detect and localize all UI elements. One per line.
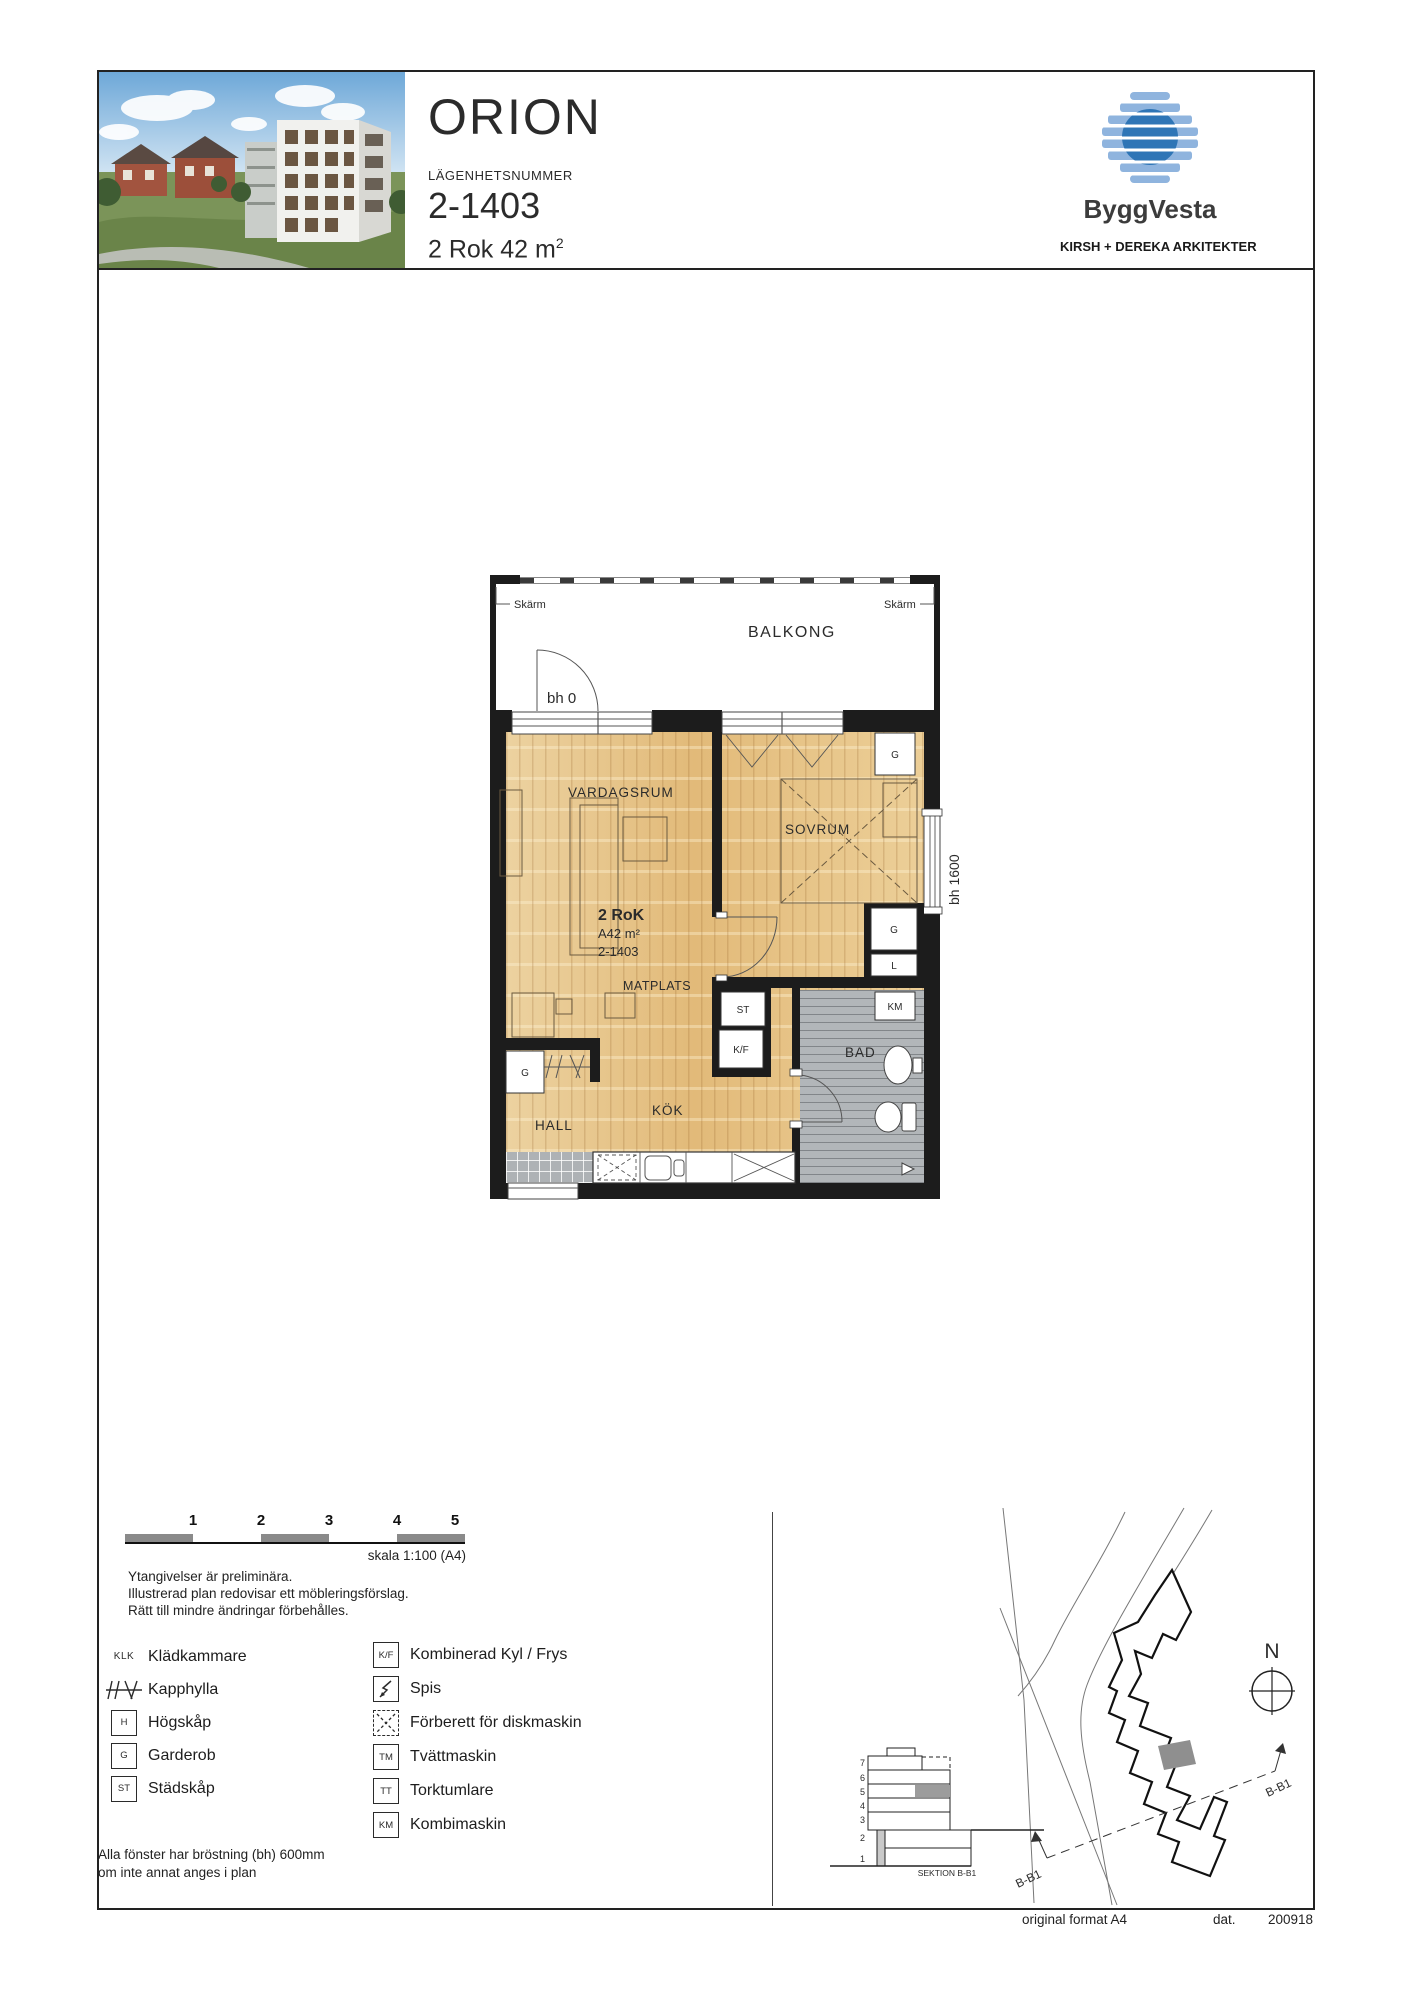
floorplan-sheet: ORION LÄGENHETSNUMMER 2-1403 2 Rok 42 m2: [0, 0, 1414, 2000]
north-compass-icon: [1249, 1667, 1295, 1715]
cleaning-closet-label: ST: [737, 1005, 750, 1016]
legend-item-diskmaskin: Förberett för diskmaskin: [362, 1706, 582, 1740]
toilet-icon: [875, 1102, 916, 1132]
legend-item-kladkammare: KLK Klädkammare: [100, 1640, 247, 1673]
brand-name: ByggVesta: [1060, 194, 1240, 225]
svg-text:7: 7: [860, 1758, 865, 1768]
svg-text:1: 1: [860, 1854, 865, 1864]
disclaimer-notes: Ytangivelser är preliminära. Illustrerad…: [128, 1568, 409, 1619]
kapphylla-icon: [544, 1055, 590, 1078]
kapphylla-icon: [104, 1678, 144, 1702]
unit-type-label: 2 RoK: [598, 907, 645, 924]
window-note-line: Alla fönster har bröstning (bh) 600mm: [98, 1846, 325, 1864]
linen-closet-label: L: [891, 961, 897, 972]
legend-label: Garderob: [148, 1747, 216, 1765]
tvattmaskin-symbol: TM: [373, 1744, 399, 1770]
scale-tick: 4: [387, 1512, 407, 1529]
bedroom-label: SOVRUM: [785, 822, 850, 837]
window-note: Alla fönster har bröstning (bh) 600mm om…: [98, 1846, 325, 1882]
entry-door: [508, 1183, 578, 1205]
legend-item-kylfrys: K/F Kombinerad Kyl / Frys: [362, 1638, 582, 1672]
legend-item-torktumlare: TT Torktumlare: [362, 1774, 582, 1808]
screen-leader-lines: [496, 587, 934, 604]
bath-label: BAD: [845, 1045, 876, 1060]
legend-label: Städskåp: [148, 1780, 215, 1798]
wardrobe-label: G: [891, 750, 899, 761]
kitchen-counter: [593, 1152, 795, 1183]
section-title: SEKTION B-B1: [918, 1868, 977, 1878]
architect-name: KIRSH + DEREKA ARKITEKTER: [1060, 239, 1240, 254]
legend-label: Torktumlare: [410, 1782, 494, 1800]
dining-label: MATPLATS: [623, 979, 691, 993]
bedroom-side-window: [922, 809, 942, 914]
legend-label: Spis: [410, 1680, 441, 1698]
balcony-label: BALKONG: [748, 624, 836, 641]
section-line-label: B-B1: [1013, 1867, 1043, 1891]
svg-text:6: 6: [860, 1773, 865, 1783]
legend-item-kapphylla: Kapphylla: [100, 1673, 247, 1706]
legend-item-hogskap: H Högskåp: [100, 1706, 247, 1739]
balcony-sill-label: bh 0: [547, 690, 576, 707]
project-title: ORION: [428, 88, 602, 146]
bathroom-door: [790, 1069, 842, 1128]
stadskap-symbol: ST: [111, 1776, 137, 1802]
footer-date: 200918: [1268, 1912, 1313, 1927]
svg-text:5: 5: [860, 1787, 865, 1797]
svg-text:2: 2: [860, 1833, 865, 1843]
legend-item-spis: Spis: [362, 1672, 582, 1706]
footer-date-label: dat.: [1213, 1912, 1236, 1927]
legend-label: Kombinerad Kyl / Frys: [410, 1646, 567, 1664]
legend-item-stadskap: ST Städskåp: [100, 1772, 247, 1805]
section-unit-marker: [915, 1785, 950, 1797]
legend-item-tvattmaskin: TM Tvättmaskin: [362, 1740, 582, 1774]
legend-label: Kombimaskin: [410, 1816, 506, 1834]
sink-icon: [645, 1156, 684, 1180]
wardrobe-label: G: [521, 1068, 529, 1079]
scale-tick: 3: [319, 1512, 339, 1529]
apartment-size: 2 Rok 42 m2: [428, 235, 602, 264]
legend-right-column: K/F Kombinerad Kyl / Frys Spis Förberett…: [362, 1638, 582, 1842]
wardrobe-label: G: [890, 925, 898, 936]
apartment-number: 2-1403: [428, 185, 602, 227]
scale-label: skala 1:100 (A4): [325, 1548, 466, 1563]
floor-drain-icon: [902, 1163, 914, 1175]
scale-bar: 1 2 3 4 5: [125, 1512, 466, 1546]
living-room-label: VARDAGSRUM: [568, 785, 674, 800]
legend-label: Klädkammare: [148, 1648, 247, 1666]
kitchen-label: KÖK: [652, 1103, 684, 1118]
kombimaskin-symbol: KM: [373, 1812, 399, 1838]
bedroom-door: [716, 912, 777, 981]
floor-numbers: 7 6 5 4 3 2 1: [860, 1758, 865, 1864]
scale-bar-segments: [125, 1534, 465, 1544]
legend-item-kombimaskin: KM Kombimaskin: [362, 1808, 582, 1842]
header-separator: [97, 268, 1313, 270]
diskmaskin-icon: [373, 1710, 399, 1736]
unit-area-label: A42 m²: [598, 926, 641, 941]
bedroom-window: [722, 712, 843, 767]
casement-marks: [726, 735, 838, 767]
living-room-window: [512, 712, 652, 734]
scale-tick: 1: [183, 1512, 203, 1529]
garderob-symbol: G: [111, 1743, 137, 1769]
window-sill-label: bh 1600: [946, 854, 962, 905]
building-footprint: [1109, 1570, 1227, 1876]
note-line: Rätt till mindre ändringar förbehålles.: [128, 1602, 409, 1619]
hall-label: HALL: [535, 1118, 573, 1133]
torktumlare-symbol: TT: [373, 1778, 399, 1804]
section-line-label: B-B1: [1263, 1776, 1293, 1800]
scale-tick: 2: [251, 1512, 271, 1529]
washbasin-icon: [884, 1046, 922, 1084]
building-photo: [99, 72, 405, 268]
legend-item-garderob: G Garderob: [100, 1739, 247, 1772]
unit-number-label: 2-1403: [598, 944, 638, 959]
kylfrys-symbol: K/F: [373, 1642, 399, 1668]
legend-label: Högskåp: [148, 1714, 211, 1732]
legend-left-column: KLK Klädkammare Kapphylla H Högskåp G Ga…: [100, 1640, 247, 1805]
size-superscript: 2: [556, 235, 564, 251]
note-line: Ytangivelser är preliminära.: [128, 1568, 409, 1585]
svg-text:4: 4: [860, 1801, 865, 1811]
spis-icon: [373, 1676, 399, 1702]
apartment-number-label: LÄGENHETSNUMMER: [428, 168, 602, 183]
scale-tick: 5: [445, 1512, 465, 1529]
fridge-freezer-label: K/F: [733, 1045, 749, 1056]
screen-label-left: Skärm: [514, 599, 546, 611]
klk-symbol: KLK: [114, 1651, 134, 1662]
svg-text:3: 3: [860, 1815, 865, 1825]
note-line: Illustrerad plan redovisar ett möblering…: [128, 1585, 409, 1602]
legend-label: Tvättmaskin: [410, 1748, 496, 1766]
washer-label: KM: [888, 1002, 903, 1013]
legend-label: Kapphylla: [148, 1681, 218, 1699]
north-label: N: [1264, 1640, 1279, 1663]
footer-format: original format A4: [1022, 1912, 1127, 1927]
site-plan: B-B1 B-B1 N 7 6 5 4: [772, 1500, 1313, 1906]
screen-label-right: Skärm: [884, 599, 916, 611]
floor-plan: Skärm Skärm BALKONG bh 0: [490, 575, 970, 1205]
legend-label: Förberett för diskmaskin: [410, 1714, 582, 1732]
furniture-outlines: [500, 779, 917, 1037]
window-note-line: om inte annat anges i plan: [98, 1864, 325, 1882]
hogskap-symbol: H: [111, 1710, 137, 1736]
byggvesta-logo-icon: [1100, 86, 1200, 190]
